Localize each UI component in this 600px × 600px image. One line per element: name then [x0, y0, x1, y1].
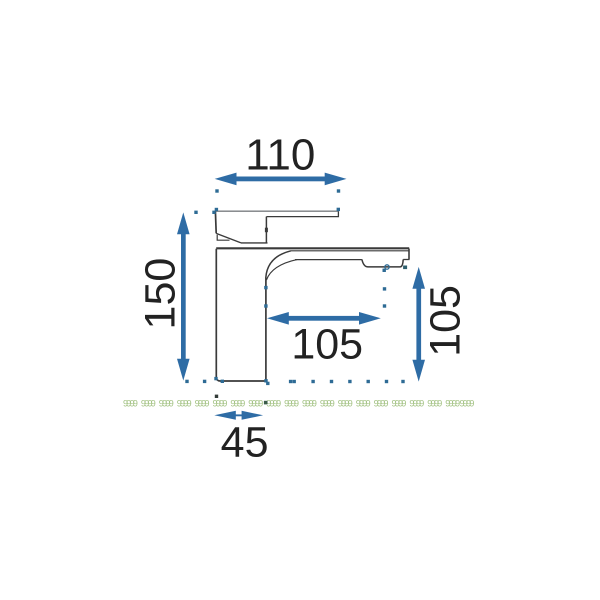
svg-text:9999: 9999 — [177, 399, 192, 409]
svg-text:9999: 9999 — [123, 399, 138, 409]
svg-text:9999: 9999 — [159, 399, 174, 409]
svg-text:105: 105 — [422, 285, 470, 357]
svg-text:9999: 9999 — [248, 399, 263, 409]
svg-text:9999: 9999 — [445, 399, 460, 409]
svg-text:105: 105 — [291, 320, 363, 368]
svg-text:9999: 9999 — [392, 399, 407, 409]
svg-text:9999: 9999 — [356, 399, 371, 409]
svg-text:45: 45 — [221, 418, 269, 466]
svg-text:9999: 9999 — [213, 399, 228, 409]
svg-text:9999: 9999 — [284, 399, 299, 409]
svg-text:9999: 9999 — [302, 399, 317, 409]
svg-text:110: 110 — [245, 130, 315, 179]
svg-text:9999: 9999 — [409, 399, 424, 409]
svg-text:9999: 9999 — [460, 399, 475, 409]
svg-text:9999: 9999 — [141, 399, 156, 409]
svg-text:9999: 9999 — [230, 399, 245, 409]
svg-text:9999: 9999 — [266, 399, 281, 409]
svg-text:9999: 9999 — [320, 399, 335, 409]
svg-text:9999: 9999 — [374, 399, 389, 409]
svg-text:150: 150 — [137, 258, 185, 330]
svg-text:9999: 9999 — [427, 399, 442, 409]
svg-text:9999: 9999 — [338, 399, 353, 409]
svg-text:9999: 9999 — [195, 399, 210, 409]
